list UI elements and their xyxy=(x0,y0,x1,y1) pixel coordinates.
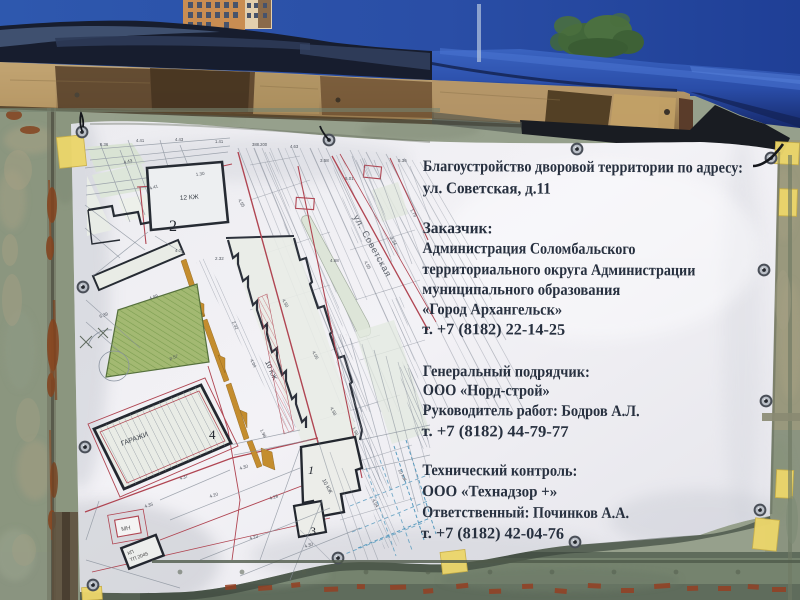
svg-text:«Город Архангельск»: «Город Архангельск» xyxy=(422,301,562,319)
svg-text:Генеральный подрядчик:: Генеральный подрядчик: xyxy=(423,363,590,381)
svg-text:4.71: 4.71 xyxy=(175,248,184,253)
svg-text:ул. Советская, д.11: ул. Советская, д.11 xyxy=(423,180,551,198)
svg-text:т. +7 (8182) 42-04-76: т. +7 (8182) 42-04-76 xyxy=(421,525,564,543)
svg-text:5.01: 5.01 xyxy=(345,176,354,181)
svg-text:Заказчик:: Заказчик: xyxy=(423,220,493,237)
svg-text:2.32: 2.32 xyxy=(215,256,224,261)
svg-text:3.58: 3.58 xyxy=(320,158,329,163)
svg-text:Технический контроль:: Технический контроль: xyxy=(422,462,577,480)
svg-text:территориального округа Админи: территориального округа Администрации xyxy=(422,261,695,279)
svg-text:4.63: 4.63 xyxy=(290,144,299,149)
svg-text:4: 4 xyxy=(209,427,216,442)
svg-text:муниципального образования: муниципального образования xyxy=(422,281,620,299)
svg-text:2: 2 xyxy=(169,218,177,235)
svg-text:ООО «Норд-строй»: ООО «Норд-строй» xyxy=(423,382,550,400)
svg-text:3: 3 xyxy=(310,524,316,538)
svg-text:1.41: 1.41 xyxy=(215,139,224,144)
svg-text:5.36: 5.36 xyxy=(398,158,407,163)
svg-text:Благоустройство дворовой терри: Благоустройство дворовой территории по а… xyxy=(423,158,743,177)
svg-text:388.200: 388.200 xyxy=(252,142,268,147)
svg-text:4.43: 4.43 xyxy=(175,137,184,142)
svg-text:ООО «Технадзор +»: ООО «Технадзор +» xyxy=(422,483,557,501)
svg-text:4.41: 4.41 xyxy=(136,138,145,143)
svg-text:т. +7 (8182) 44-79-77: т. +7 (8182) 44-79-77 xyxy=(422,423,569,441)
svg-text:6.36: 6.36 xyxy=(100,142,109,147)
svg-text:Ответственный: Починков А.А.: Ответственный: Починков А.А. xyxy=(422,504,629,522)
svg-text:4.68: 4.68 xyxy=(330,258,339,263)
svg-text:1: 1 xyxy=(308,463,314,477)
svg-text:Руководитель работ: Бодров А.Л: Руководитель работ: Бодров А.Л. xyxy=(423,402,640,420)
svg-text:т. +7 (8182) 22-14-25: т. +7 (8182) 22-14-25 xyxy=(422,321,565,339)
svg-text:12 КЖ: 12 КЖ xyxy=(180,194,199,202)
svg-text:Администрация Соломбальского: Администрация Соломбальского xyxy=(422,240,635,258)
